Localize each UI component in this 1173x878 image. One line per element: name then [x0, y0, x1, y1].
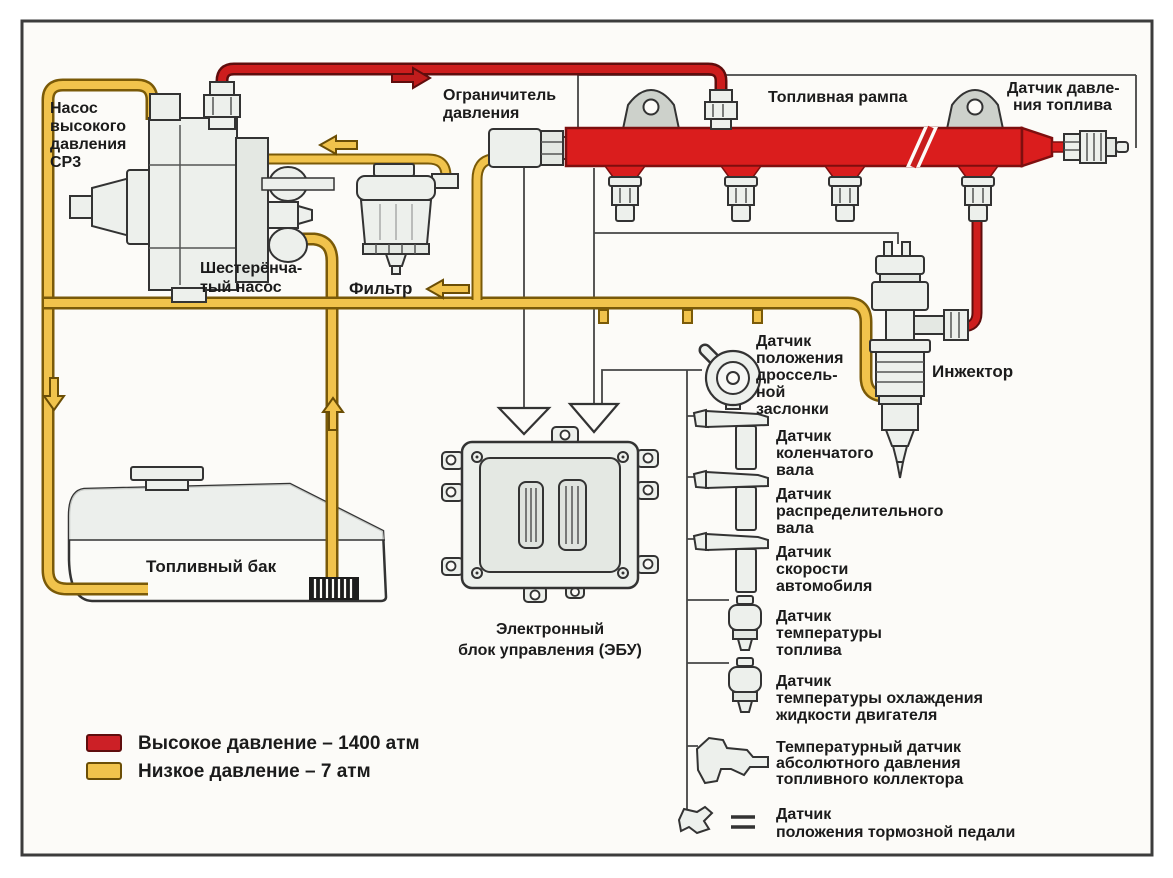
svg-text:скорости: скорости	[776, 561, 848, 578]
svg-text:положения: положения	[756, 350, 843, 367]
svg-text:жидкости двигателя: жидкости двигателя	[775, 707, 937, 724]
svg-text:топливного коллектора: топливного коллектора	[776, 771, 963, 788]
svg-text:высокого: высокого	[50, 118, 126, 135]
svg-text:давления: давления	[50, 136, 126, 153]
legend-low-pressure-label: Низкое давление – 7 атм	[138, 761, 371, 782]
svg-text:абсолютного давления: абсолютного давления	[776, 755, 961, 772]
pump-outlet-fitting	[210, 82, 234, 95]
svg-text:вала: вала	[776, 462, 814, 479]
svg-text:СР3: СР3	[50, 154, 81, 171]
filter-label: Фильтр	[349, 279, 412, 298]
tank-filler-cap	[131, 467, 203, 480]
tank-fuel-pickup	[309, 577, 359, 600]
injector-label: Инжектор	[932, 362, 1013, 381]
sensor-label: Датчик	[756, 333, 812, 350]
svg-text:температуры охлаждения: температуры охлаждения	[776, 690, 983, 707]
legend-high-pressure-label: Высокое давление – 1400 атм	[138, 733, 420, 754]
svg-text:температуры: температуры	[776, 625, 882, 642]
pressure-limiter	[489, 129, 573, 167]
svg-text:блок управления (ЭБУ): блок управления (ЭБУ)	[458, 642, 642, 659]
sensor-label: Датчик	[776, 544, 832, 561]
svg-text:давления: давления	[443, 105, 519, 122]
pump-top-fitting	[150, 94, 180, 120]
fuel-rail-label: Топливная рампа	[768, 89, 908, 106]
sensor-label: Температурный датчик	[776, 739, 962, 756]
svg-text:вала: вала	[776, 520, 814, 537]
legend-swatch-low-pressure	[87, 763, 121, 779]
pressure-limiter-label: Ограничитель	[443, 87, 556, 104]
svg-text:автомобиля: автомобиля	[776, 578, 872, 595]
diagram-page: Топливный бак	[0, 0, 1173, 878]
return-stub	[683, 310, 692, 323]
return-stub	[753, 310, 762, 323]
gear-pump-label: Шестерёнча-	[200, 260, 302, 277]
fuel-tank-label: Топливный бак	[146, 557, 277, 576]
return-stub	[599, 310, 608, 323]
sensor-label: Датчик	[776, 806, 832, 823]
ecu-label: Электронный	[496, 621, 604, 638]
svg-text:ной: ной	[756, 384, 785, 401]
svg-text:дроссель-: дроссель-	[756, 367, 838, 384]
svg-text:коленчатого: коленчатого	[776, 445, 874, 462]
svg-text:заслонки: заслонки	[756, 401, 829, 418]
sensor-label: Датчик	[776, 673, 832, 690]
sensor-label: Датчик	[776, 608, 832, 625]
sensor-label: Датчик	[776, 486, 832, 503]
common-rail-diagram: Топливный бак	[0, 0, 1173, 878]
pump-label: Насос	[50, 100, 98, 117]
fuel-pressure-sensor-label: Датчик давле-	[1007, 80, 1120, 97]
legend-swatch-high-pressure	[87, 735, 121, 751]
svg-text:тый насос: тый насос	[200, 279, 282, 296]
sensor-label: Датчик	[776, 428, 832, 445]
svg-text:топлива: топлива	[776, 642, 842, 659]
svg-text:распределительного: распределительного	[776, 503, 944, 520]
svg-text:ния топлива: ния топлива	[1013, 97, 1112, 114]
svg-text:положения тормозной педали: положения тормозной педали	[776, 824, 1015, 841]
